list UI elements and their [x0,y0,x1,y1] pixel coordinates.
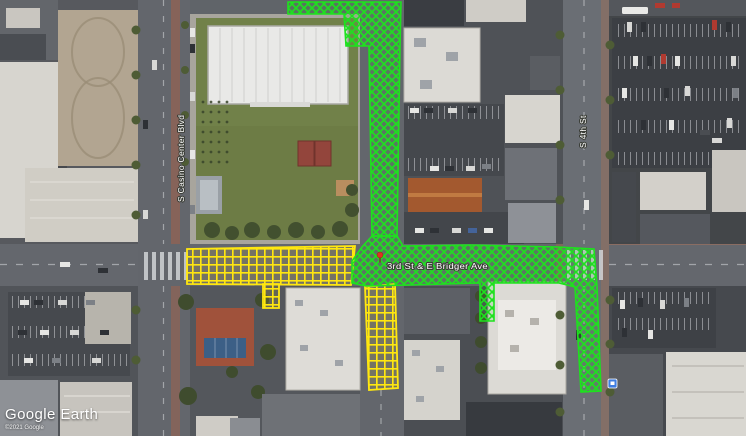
yellow-route-stub [263,284,279,308]
block-northwest [0,0,138,244]
street-label-casino-center: S Casino Center Blvd [176,115,186,202]
placemark-label: 3rd St & E Bridger Ave [387,261,488,271]
transit-stop-icon[interactable] [608,379,617,388]
events-center-block [190,14,360,244]
copyright-text: ©2021 Google [5,425,98,432]
google-earth-logo: Google Earth [5,407,98,424]
red-containers [298,141,331,166]
map-viewport[interactable]: S Casino Center Blvd S 4th St 3rd St & E… [0,0,746,436]
block-southeast [609,286,746,436]
street-label-4th-st: S 4th St [578,115,588,148]
yellow-route-3rd-south [365,284,398,390]
red-roof-house [196,308,254,366]
event-tent [208,26,348,107]
block-northeast [609,0,746,244]
watermark: Google Earth ©2021 Google [5,407,98,432]
block-north-central [404,0,563,244]
yellow-route-bridger-west [187,246,355,285]
